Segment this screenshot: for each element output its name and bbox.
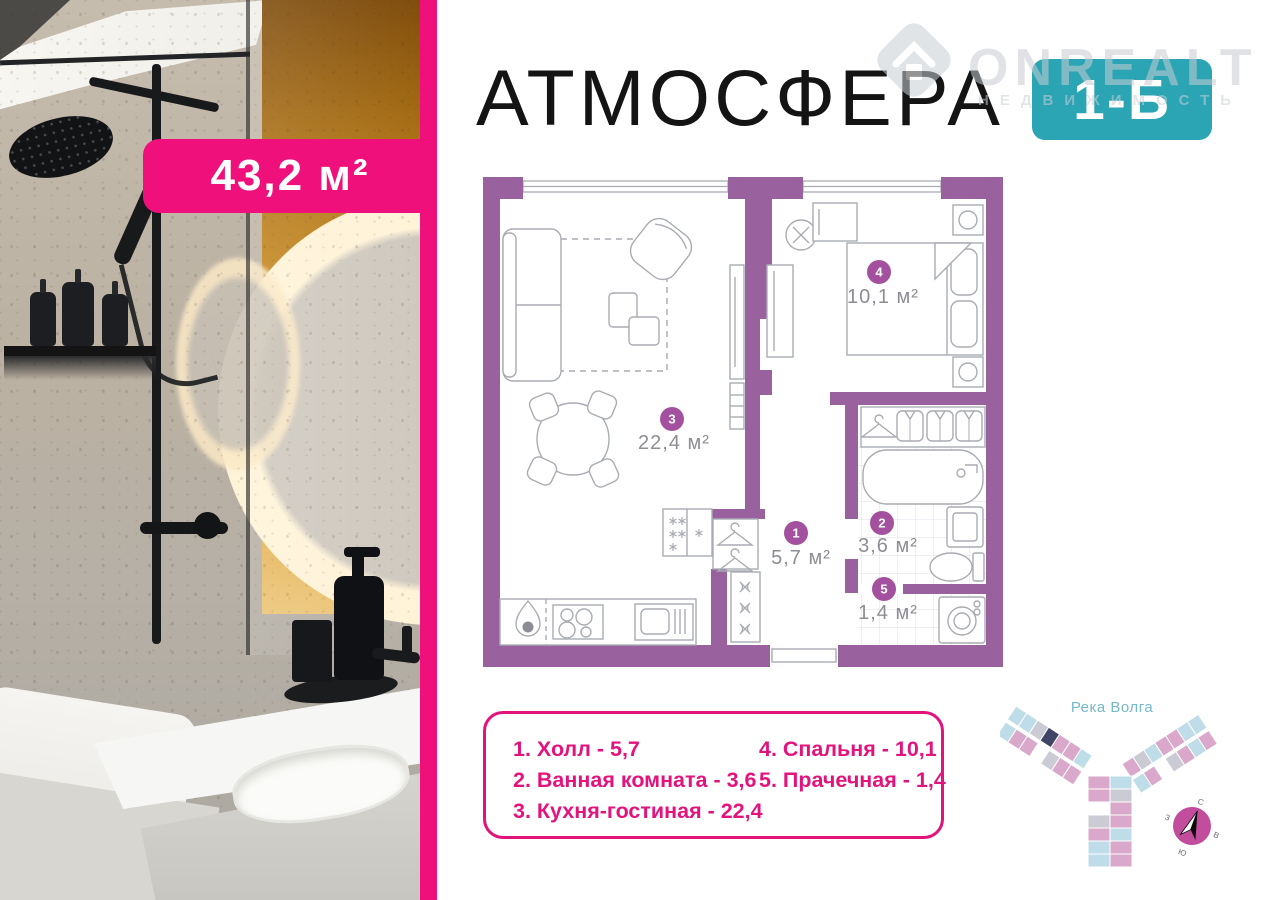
kitchen-sink [635, 604, 693, 640]
compass-north: С [1196, 797, 1205, 808]
total-area-label: 43,2 м² [210, 151, 369, 201]
room-number: 3 [668, 412, 675, 427]
armchair [625, 213, 698, 286]
floor-plan: 3 22,4 м² 4 10,1 м² 1 5,7 м² 2 3,6 м² 5 … [483, 177, 1003, 669]
mixer-knob [194, 512, 221, 539]
bottle-pump [75, 269, 81, 283]
wall-shelf [4, 346, 156, 356]
bottle-pump [112, 281, 118, 295]
nightstand [953, 357, 983, 387]
room-number: 5 [880, 582, 887, 597]
radiator [730, 383, 744, 429]
room-area: 1,4 м² [858, 602, 918, 624]
faucet-handle [402, 626, 412, 660]
compass-west: З [1164, 813, 1172, 823]
compass-east: В [1212, 830, 1220, 840]
building-wing-bottom [1088, 776, 1132, 867]
room-number: 2 [878, 516, 885, 531]
room-area: 10,1 м² [847, 286, 919, 308]
shoe-cabinet [731, 572, 760, 642]
legend-item: 4. Спальня - 10,1 [759, 734, 946, 765]
legend-item: 3. Кухня-гостиная - 22,4 [513, 796, 763, 827]
bottle [30, 292, 56, 346]
side-table [629, 317, 659, 345]
building-wing-left [1000, 706, 1092, 785]
wall-shelf-lip [4, 356, 156, 380]
legend-item: 1. Холл - 5,7 [513, 734, 763, 765]
site-plan: Река Волга [1000, 688, 1280, 895]
bathroom-photo [0, 0, 420, 900]
wardrobe [861, 407, 985, 447]
hall-closet [713, 519, 758, 571]
room-area: 3,6 м² [858, 535, 918, 557]
plan-type-badge: 1-Б [1032, 59, 1212, 140]
sofa [503, 229, 561, 381]
room-number: 1 [792, 526, 799, 541]
bathtub-plan [863, 450, 983, 504]
washbasin [947, 507, 983, 547]
room-area: 22,4 м² [638, 432, 710, 454]
dining-set [525, 389, 621, 489]
room-number: 4 [875, 265, 883, 280]
listing-flyer: 43,2 м² АТМОСФЕРА 1-Б ONREALT НЕДВИЖИМОС… [0, 0, 1280, 900]
legend-item: 5. Прачечная - 1,4 [759, 765, 946, 796]
stove [553, 605, 603, 639]
ceiling-fan-symbol [786, 220, 816, 250]
soap-dispenser-spout [344, 547, 380, 557]
hall-cabinet [767, 265, 793, 357]
washing-machine [939, 597, 985, 643]
shower-glass [250, 0, 420, 655]
dresser [813, 203, 857, 241]
toilet [930, 553, 984, 581]
tumbler-cup [292, 620, 332, 682]
bottle-pump [40, 279, 46, 293]
nightstand [953, 205, 983, 235]
bottle [102, 294, 128, 346]
pantry-unit [663, 509, 712, 556]
room-area: 5,7 м² [771, 547, 831, 569]
legend-column-2: 4. Спальня - 10,1 5. Прачечная - 1,4 [759, 734, 946, 796]
brand-title: АТМОСФЕРА [446, 52, 1034, 144]
soap-dispenser-neck [352, 556, 364, 580]
compass-south: Ю [1177, 847, 1188, 858]
plan-type-label: 1-Б [1073, 67, 1171, 133]
soap-dispenser [334, 576, 384, 680]
room-legend: 1. Холл - 5,7 2. Ванная комната - 3,6 3.… [483, 711, 944, 839]
river-label: Река Волга [1071, 699, 1154, 716]
pink-divider [420, 0, 437, 900]
compass-rose: С Ю З В [1154, 788, 1229, 867]
legend-column-1: 1. Холл - 5,7 2. Ванная комната - 3,6 3.… [513, 734, 763, 827]
building-wing-right [1122, 714, 1217, 793]
total-area-badge: 43,2 м² [143, 139, 437, 213]
legend-item: 2. Ванная комната - 3,6 [513, 765, 763, 796]
bottle [62, 282, 94, 346]
tv-unit [730, 265, 744, 379]
entrance-door [772, 649, 836, 662]
